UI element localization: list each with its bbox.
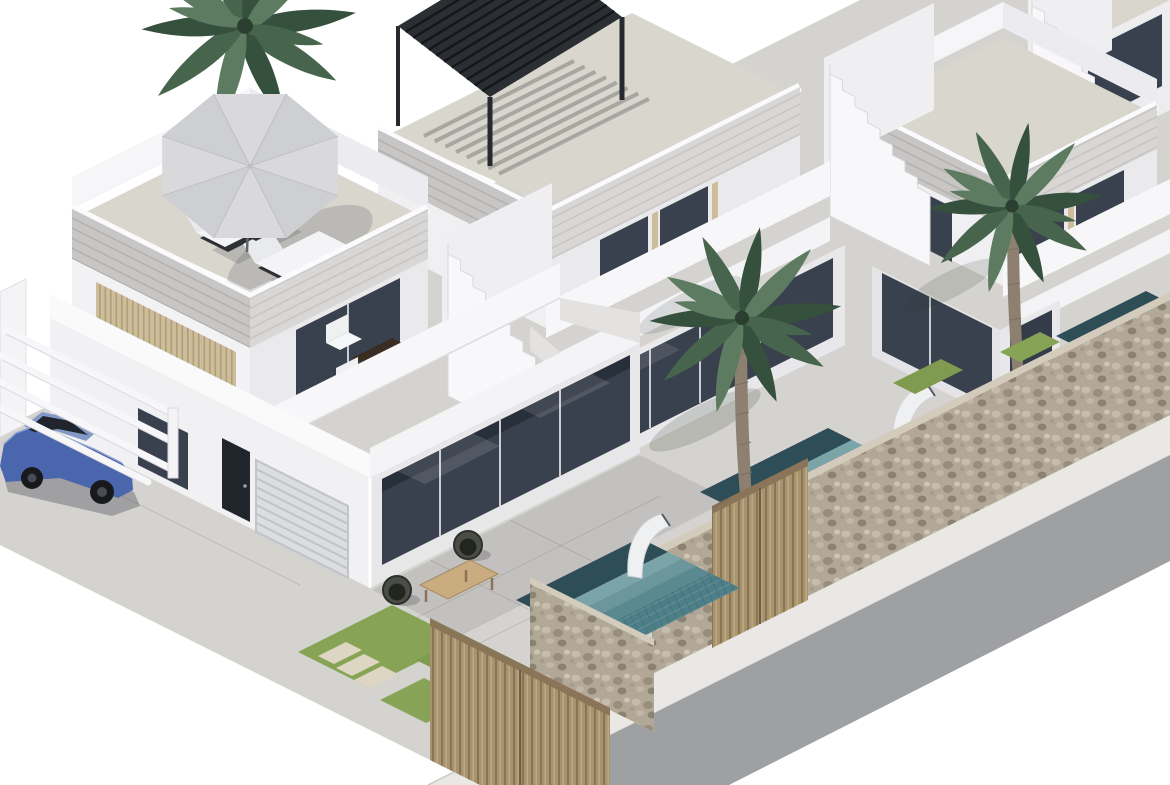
render-canvas [0, 0, 1170, 785]
door-handle [243, 484, 247, 488]
chair1-cushion [389, 584, 406, 601]
entry-door [222, 438, 250, 522]
carport-post [168, 408, 178, 478]
car-hub-front [97, 487, 107, 497]
architectural-render [0, 0, 1170, 785]
chair2-cushion [460, 539, 477, 556]
car-hub-rear [28, 474, 37, 483]
parasol-hub [248, 164, 253, 169]
